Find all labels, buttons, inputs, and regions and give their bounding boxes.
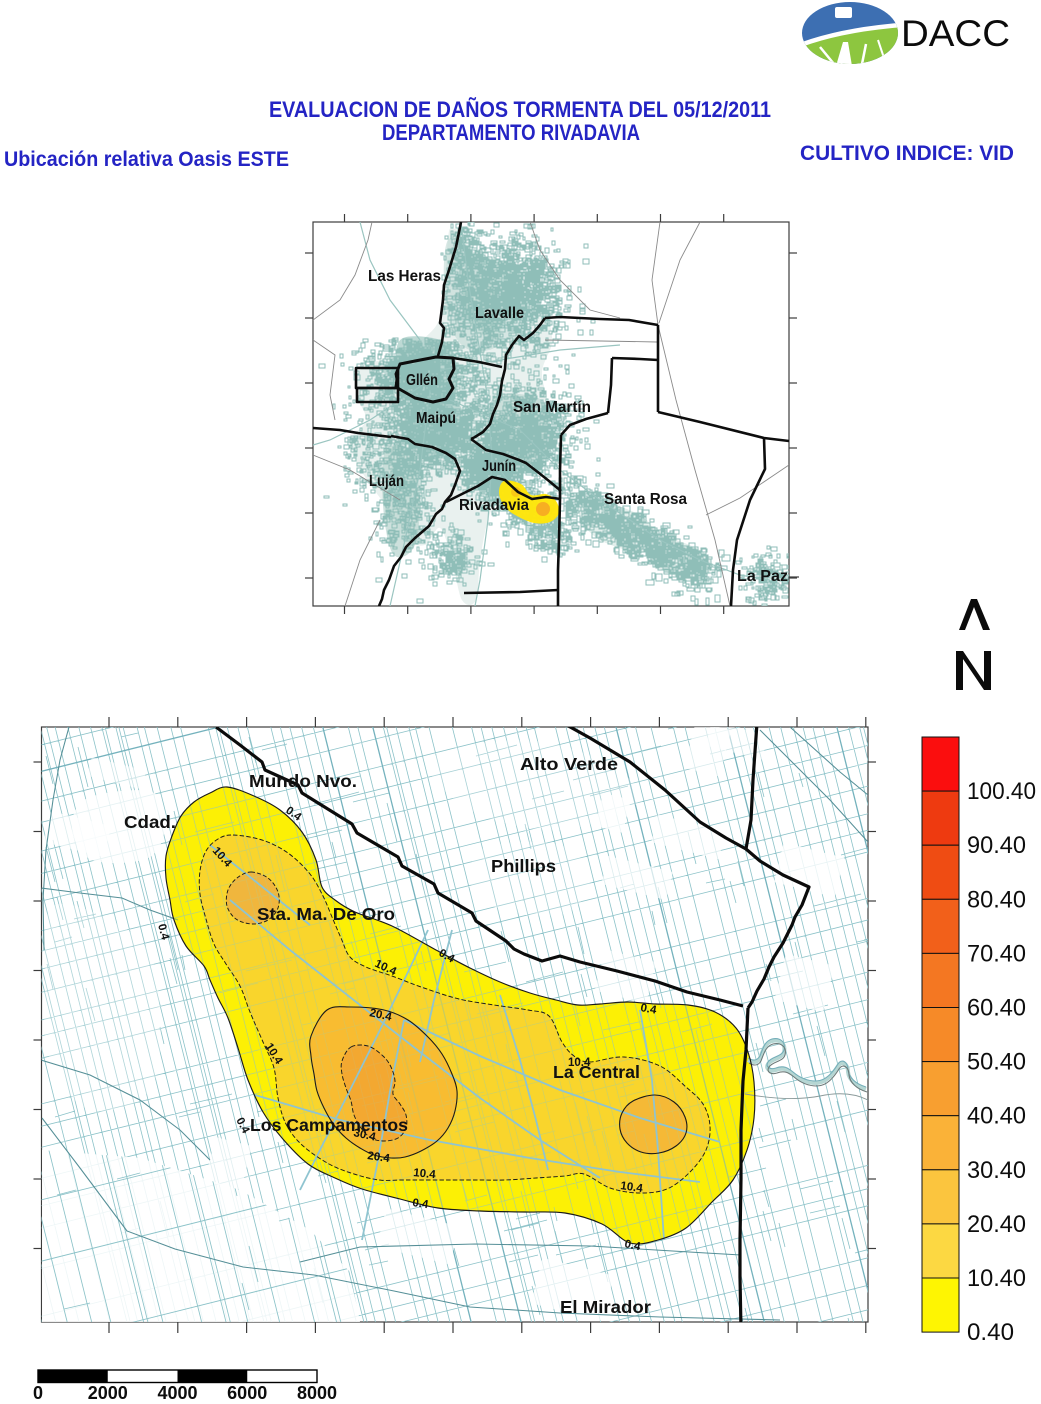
svg-text:Lavalle: Lavalle: [475, 305, 524, 322]
svg-text:Rivadavia: Rivadavia: [459, 497, 529, 514]
svg-text:Las Heras: Las Heras: [368, 268, 441, 285]
svg-text:6000: 6000: [227, 1383, 267, 1403]
svg-text:CULTIVO INDICE: VID: CULTIVO INDICE: VID: [800, 142, 1014, 165]
svg-text:0.4: 0.4: [233, 1116, 251, 1136]
svg-text:Ubicación relativa Oasis ESTE: Ubicación relativa Oasis ESTE: [4, 148, 289, 171]
svg-text:Cdad.: Cdad.: [124, 812, 176, 832]
svg-text:La Central: La Central: [553, 1062, 640, 1082]
svg-text:EVALUACION DE DAÑOS TORMENTA D: EVALUACION DE DAÑOS TORMENTA DEL 05/12/2…: [269, 97, 771, 122]
svg-text:40.40: 40.40: [967, 1103, 1026, 1130]
svg-text:0.4: 0.4: [412, 1197, 430, 1211]
svg-text:10.40: 10.40: [967, 1265, 1026, 1292]
svg-text:Phillips: Phillips: [491, 856, 556, 876]
svg-text:Junín: Junín: [482, 458, 516, 475]
svg-text:60.40: 60.40: [967, 995, 1026, 1022]
svg-text:Sta. Ma. De Oro: Sta. Ma. De Oro: [257, 904, 395, 924]
svg-text:70.40: 70.40: [967, 940, 1026, 967]
svg-text:100.40: 100.40: [967, 778, 1036, 805]
svg-text:DEPARTAMENTO RIVADAVIA: DEPARTAMENTO RIVADAVIA: [382, 120, 640, 145]
svg-text:Gllén: Gllén: [406, 372, 438, 389]
svg-text:0: 0: [33, 1383, 43, 1403]
svg-text:Maipú: Maipú: [416, 410, 456, 427]
svg-text:2000: 2000: [88, 1383, 128, 1403]
svg-text:DACC: DACC: [901, 13, 1010, 54]
svg-text:Alto Verde: Alto Verde: [520, 754, 618, 774]
svg-text:50.40: 50.40: [967, 1049, 1026, 1076]
svg-text:Luján: Luján: [369, 473, 404, 490]
svg-text:Santa Rosa: Santa Rosa: [604, 491, 687, 508]
svg-text:4000: 4000: [157, 1383, 197, 1403]
svg-text:8000: 8000: [297, 1383, 337, 1403]
svg-text:90.40: 90.40: [967, 832, 1026, 859]
svg-text:0.4: 0.4: [623, 1238, 642, 1253]
svg-text:30.40: 30.40: [967, 1157, 1026, 1184]
svg-text:80.40: 80.40: [967, 886, 1026, 913]
svg-text:10.4: 10.4: [413, 1167, 437, 1181]
svg-text:San Martín: San Martín: [513, 399, 591, 416]
svg-text:El Mirador: El Mirador: [560, 1297, 651, 1317]
svg-text:Los Campamentos: Los Campamentos: [250, 1115, 408, 1135]
svg-text:La Paz: La Paz: [737, 568, 788, 585]
svg-text:Mundo Nvo.: Mundo Nvo.: [249, 771, 357, 791]
svg-text:20.40: 20.40: [967, 1211, 1026, 1238]
svg-text:0.40: 0.40: [967, 1319, 1014, 1346]
